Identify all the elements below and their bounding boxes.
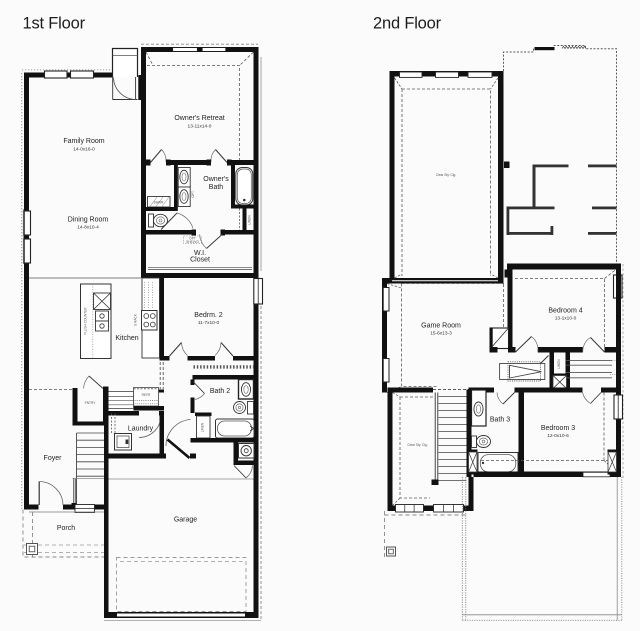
svg-text:12-0x10-6: 12-0x10-6 bbox=[547, 433, 569, 439]
svg-text:14-0x16-0: 14-0x16-0 bbox=[73, 147, 95, 153]
svg-text:SHELVG: SHELVG bbox=[186, 240, 199, 244]
svg-text:Owner's Retreat: Owner's Retreat bbox=[174, 115, 224, 122]
svg-text:13-1x10-0: 13-1x10-0 bbox=[555, 316, 577, 322]
svg-text:1st Floor: 1st Floor bbox=[23, 15, 86, 33]
svg-text:Dining Room: Dining Room bbox=[68, 217, 109, 224]
svg-text:Bath 3: Bath 3 bbox=[490, 417, 510, 424]
svg-text:Kitchen: Kitchen bbox=[115, 335, 138, 342]
svg-text:Bedroom 3: Bedroom 3 bbox=[541, 425, 575, 432]
svg-text:Owner's: Owner's bbox=[203, 176, 229, 183]
svg-text:LINEN: LINEN bbox=[557, 359, 561, 369]
svg-text:Bath 2: Bath 2 bbox=[210, 388, 230, 395]
svg-text:Laundry: Laundry bbox=[128, 426, 154, 433]
svg-text:Closet: Closet bbox=[190, 257, 210, 264]
svg-text:FLUSH COUNTER: FLUSH COUNTER bbox=[84, 307, 88, 335]
svg-text:Bedroom 4: Bedroom 4 bbox=[548, 308, 582, 315]
svg-text:11-7x10-0: 11-7x10-0 bbox=[198, 320, 220, 326]
svg-text:LINEN: LINEN bbox=[248, 215, 252, 225]
svg-text:14-8x10-4: 14-8x10-4 bbox=[77, 225, 99, 231]
svg-text:PNTRY: PNTRY bbox=[85, 401, 97, 405]
svg-text:Family Room: Family Room bbox=[63, 138, 104, 145]
svg-text:OPT.: OPT. bbox=[191, 190, 195, 197]
svg-text:Clear Sty. Clg.: Clear Sty. Clg. bbox=[407, 443, 427, 447]
svg-text:2nd Floor: 2nd Floor bbox=[373, 15, 442, 33]
svg-text:Porch: Porch bbox=[57, 525, 75, 532]
svg-text:13-11x14-0: 13-11x14-0 bbox=[188, 124, 212, 130]
svg-text:Bath: Bath bbox=[209, 184, 224, 191]
svg-text:REFR: REFR bbox=[142, 393, 151, 397]
svg-text:S RACK: S RACK bbox=[134, 313, 138, 326]
svg-text:Foyer: Foyer bbox=[44, 455, 63, 462]
svg-text:Bedrm. 2: Bedrm. 2 bbox=[194, 312, 223, 319]
svg-text:Garage: Garage bbox=[174, 517, 197, 524]
svg-text:Clear Sty. Clg.: Clear Sty. Clg. bbox=[436, 173, 456, 177]
svg-text:Game Room: Game Room bbox=[421, 323, 461, 330]
svg-text:LINEN: LINEN bbox=[201, 422, 205, 432]
svg-text:SHWR: SHWR bbox=[154, 201, 164, 205]
svg-text:15-6x13-3: 15-6x13-3 bbox=[430, 331, 452, 337]
